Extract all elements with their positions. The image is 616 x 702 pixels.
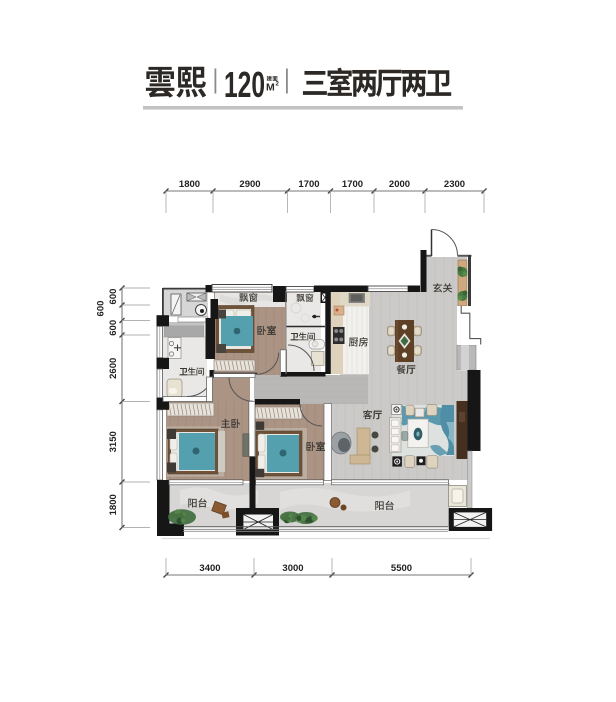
svg-text:2300: 2300 <box>444 179 465 190</box>
svg-text:600: 600 <box>108 289 119 305</box>
svg-text:600: 600 <box>108 320 119 336</box>
svg-text:1800: 1800 <box>108 494 119 515</box>
svg-text:1700: 1700 <box>342 179 363 190</box>
svg-text:3150: 3150 <box>108 431 119 452</box>
svg-text:5500: 5500 <box>391 563 412 574</box>
svg-text:1700: 1700 <box>298 179 319 190</box>
svg-text:3000: 3000 <box>282 563 303 574</box>
svg-text:M: M <box>266 82 275 94</box>
svg-text:600: 600 <box>96 301 107 317</box>
svg-text:2600: 2600 <box>108 358 119 379</box>
svg-text:120: 120 <box>224 64 265 105</box>
svg-text:1800: 1800 <box>179 179 200 190</box>
svg-text:2000: 2000 <box>389 179 410 190</box>
svg-text:2900: 2900 <box>239 179 260 190</box>
svg-text:3400: 3400 <box>199 563 220 574</box>
